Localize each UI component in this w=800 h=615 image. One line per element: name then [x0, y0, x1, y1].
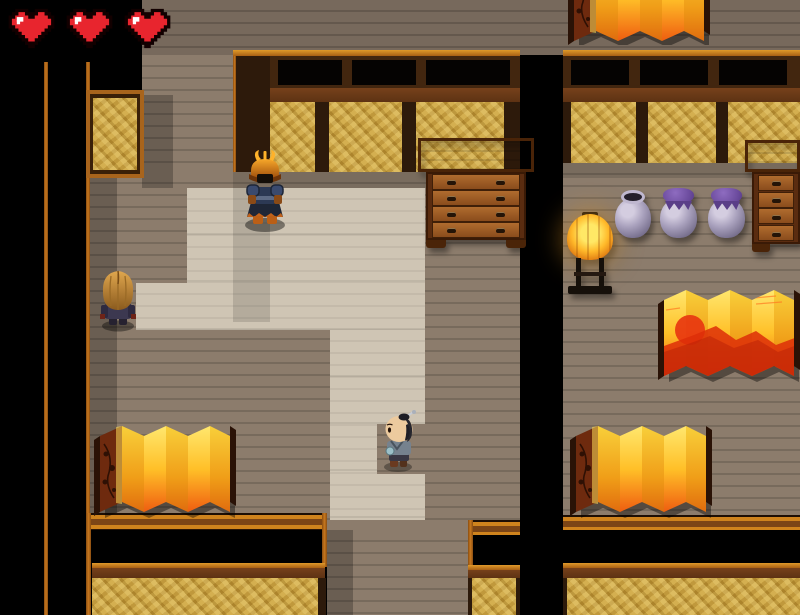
bottom-gold-wall-mini	[472, 578, 516, 615]
chest-of-drawers-center[interactable]	[418, 136, 534, 248]
folding-screen-top[interactable]	[568, 0, 714, 45]
heart-icon	[124, 8, 171, 49]
jar-cloth-points	[713, 201, 740, 210]
transom-window	[640, 60, 708, 85]
wall-ledge-right-room	[563, 515, 800, 530]
left-wall-gold-panel	[93, 98, 137, 170]
game-viewport	[0, 0, 800, 615]
covered-jar-1[interactable]	[660, 188, 697, 240]
dresser-drawers	[426, 172, 526, 240]
heart-icon	[66, 8, 113, 49]
dresser-lid	[745, 140, 800, 172]
wall-edge-trim	[86, 513, 91, 615]
bottom-wall-beam	[92, 568, 325, 578]
lantern-base	[568, 286, 612, 294]
wall-edge-trim	[322, 513, 327, 567]
walkway-tiles-upper	[187, 188, 425, 283]
wall-pillar	[468, 578, 472, 615]
dresser-drawers	[752, 172, 800, 244]
dresser-foot	[752, 244, 770, 252]
drawer[interactable]	[432, 174, 520, 190]
transom-window	[719, 60, 787, 85]
wall-edge-trim	[233, 56, 236, 172]
transom-window	[278, 60, 342, 85]
transom-window	[571, 60, 629, 85]
wall-pillar	[563, 102, 571, 163]
covered-jar-2[interactable]	[708, 188, 745, 240]
long-hair-npc[interactable]	[97, 270, 139, 332]
wall-pillar	[315, 102, 329, 172]
wall-edge-trim	[468, 520, 473, 567]
wall-pillar	[318, 578, 326, 615]
wall-pillar	[563, 578, 567, 615]
chest-of-drawers-right[interactable]	[745, 140, 800, 255]
wall-pillar	[402, 102, 416, 172]
wall-pillar	[716, 102, 728, 163]
standing-lantern[interactable]	[564, 212, 616, 294]
folding-screen-art	[570, 424, 712, 516]
drawer[interactable]	[758, 175, 794, 191]
heart-icon	[8, 8, 55, 49]
folding-screen-art	[658, 288, 800, 380]
jar-body	[615, 198, 651, 238]
bottom-gold-wall-right	[566, 578, 800, 615]
lantern-shelf	[574, 272, 606, 276]
wall-pillar	[516, 578, 520, 615]
bottom-wall-beam	[468, 570, 520, 578]
walkway-tiles-wide	[136, 283, 425, 330]
drawer[interactable]	[758, 208, 794, 224]
wall-shadow	[142, 95, 173, 188]
health-hearts-hud	[8, 8, 171, 49]
folding-screen-bottom-left[interactable]	[94, 424, 236, 516]
wall-beam	[563, 88, 800, 102]
dresser-lid	[418, 138, 534, 172]
drawer[interactable]	[432, 206, 520, 222]
lantern-glow	[567, 214, 613, 260]
folding-screen-art	[94, 424, 236, 516]
drawer[interactable]	[432, 222, 520, 238]
wall-beam	[270, 88, 520, 102]
drawer[interactable]	[758, 225, 794, 241]
armored-samurai-npc[interactable]	[242, 150, 288, 234]
dresser-foot	[426, 240, 446, 248]
jar-mouth	[621, 190, 645, 204]
folding-screen-bottom-right[interactable]	[570, 424, 712, 516]
wall-pillar	[636, 102, 648, 163]
dresser-foot	[506, 240, 526, 248]
wall-cap	[468, 520, 520, 535]
transom-window	[352, 60, 416, 85]
wall-shadow	[327, 530, 353, 615]
drawer[interactable]	[432, 190, 520, 206]
drawer[interactable]	[758, 192, 794, 208]
lantern-ribs	[567, 214, 613, 260]
folding-screen-art	[568, 0, 710, 45]
wall-edge-trim	[44, 62, 48, 615]
player-topknot[interactable]	[377, 412, 421, 472]
bottom-wall-beam	[563, 568, 800, 578]
jar-cloth-points	[665, 201, 692, 210]
bottom-gold-wall-left	[92, 578, 325, 615]
folding-screen-sun[interactable]	[658, 288, 800, 380]
open-jar[interactable]	[615, 190, 651, 240]
transom-window	[426, 60, 510, 85]
